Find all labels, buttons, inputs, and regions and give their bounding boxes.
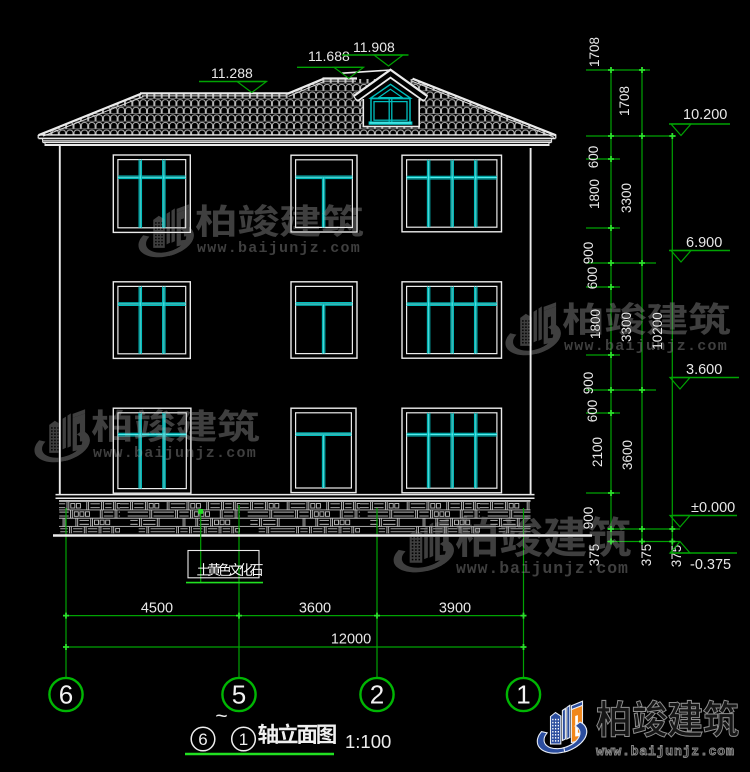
svg-text:2: 2 — [370, 680, 384, 710]
svg-text:1:100: 1:100 — [345, 731, 391, 752]
svg-text:900: 900 — [581, 242, 596, 265]
svg-text:www.baijunjz.com: www.baijunjz.com — [456, 559, 629, 578]
svg-text:3.600: 3.600 — [686, 362, 722, 378]
svg-text:2100: 2100 — [590, 437, 605, 467]
svg-text:www.baijunjz.com: www.baijunjz.com — [564, 338, 728, 355]
svg-text:6.900: 6.900 — [686, 235, 722, 251]
svg-text:6: 6 — [59, 680, 73, 710]
svg-text:±0.000: ±0.000 — [691, 500, 735, 516]
svg-text:www.baijunjz.com: www.baijunjz.com — [197, 240, 361, 257]
svg-text:600: 600 — [586, 146, 601, 169]
svg-text:~: ~ — [215, 705, 227, 728]
svg-text:3300: 3300 — [619, 183, 634, 213]
svg-text:1708: 1708 — [587, 37, 602, 67]
svg-text:10.200: 10.200 — [683, 107, 727, 123]
svg-text:375: 375 — [639, 544, 654, 567]
svg-text:600: 600 — [585, 267, 600, 290]
svg-text:4500: 4500 — [141, 601, 173, 617]
svg-text:1: 1 — [516, 680, 530, 710]
svg-text:11.688: 11.688 — [308, 48, 350, 64]
svg-text:12000: 12000 — [331, 632, 371, 648]
svg-text:1: 1 — [239, 730, 248, 749]
svg-text:1708: 1708 — [617, 86, 632, 116]
svg-text:1800: 1800 — [587, 179, 602, 209]
svg-text:www.baijunjz.com: www.baijunjz.com — [93, 445, 257, 462]
svg-text:900: 900 — [581, 372, 596, 395]
svg-text:3600: 3600 — [620, 440, 635, 470]
svg-text:375: 375 — [669, 545, 684, 568]
svg-text:11.908: 11.908 — [353, 39, 395, 55]
svg-text:3900: 3900 — [439, 601, 471, 617]
svg-text:600: 600 — [585, 400, 600, 423]
svg-text:3600: 3600 — [299, 601, 331, 617]
svg-text:www.baijunjz.com: www.baijunjz.com — [596, 744, 735, 759]
svg-text:6: 6 — [198, 730, 207, 749]
svg-text:-0.375: -0.375 — [690, 557, 731, 573]
svg-text:5: 5 — [232, 680, 246, 710]
svg-text:11.288: 11.288 — [211, 65, 253, 81]
